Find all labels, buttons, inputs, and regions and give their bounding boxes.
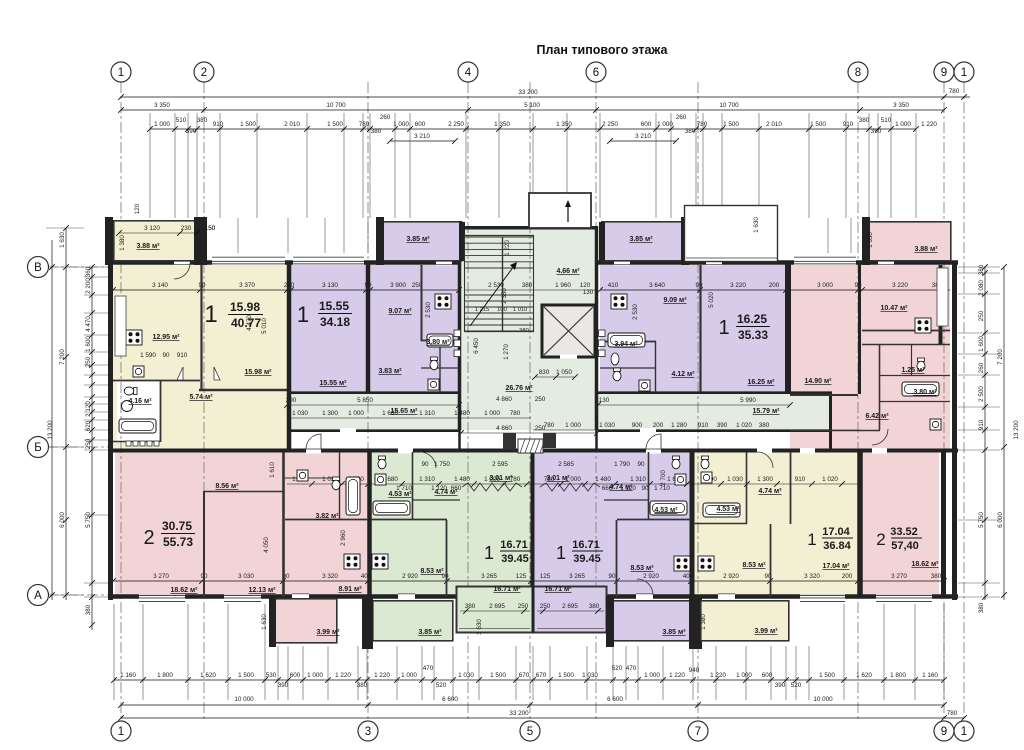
svg-text:2 700: 2 700 [660,470,667,486]
svg-text:360: 360 [85,266,92,277]
svg-text:8.56 м²: 8.56 м² [215,483,239,490]
svg-text:17.04 м²: 17.04 м² [823,563,851,570]
svg-text:6 000: 6 000 [59,512,66,528]
svg-text:1 380: 1 380 [119,235,126,251]
svg-text:35.33: 35.33 [738,328,768,342]
svg-text:910: 910 [698,422,709,429]
svg-text:2: 2 [201,67,207,79]
svg-text:16.25 м²: 16.25 м² [748,379,776,386]
svg-text:910: 910 [795,476,806,483]
svg-text:8.53 м²: 8.53 м² [742,562,766,569]
svg-text:1 630: 1 630 [261,614,268,630]
svg-text:4.66 м²: 4.66 м² [556,268,580,275]
svg-text:1 630: 1 630 [476,619,483,635]
svg-text:1 350: 1 350 [494,121,510,128]
svg-text:9: 9 [941,67,947,79]
svg-text:1: 1 [718,317,729,339]
svg-text:380: 380 [931,573,942,580]
svg-text:380: 380 [465,603,476,610]
svg-text:910: 910 [177,352,188,359]
svg-text:1 000: 1 000 [895,121,911,128]
svg-text:1 020: 1 020 [736,422,752,429]
svg-text:120: 120 [134,203,141,214]
svg-text:17.04: 17.04 [822,526,850,538]
svg-text:9.09 м²: 9.09 м² [663,297,687,304]
svg-text:18.62 м²: 18.62 м² [912,561,940,568]
svg-text:1 010: 1 010 [513,307,528,313]
svg-text:3 220: 3 220 [730,282,746,289]
svg-text:1 630: 1 630 [867,232,874,248]
svg-text:1 000: 1 000 [484,410,500,417]
svg-text:3.82 м²: 3.82 м² [315,513,339,520]
svg-text:2 080: 2 080 [978,280,985,296]
svg-text:6 450: 6 450 [473,338,480,354]
svg-text:15.55 м²: 15.55 м² [320,380,348,387]
svg-text:33.52: 33.52 [890,526,918,538]
svg-text:250: 250 [85,438,92,449]
svg-text:1 480: 1 480 [595,476,611,483]
svg-text:8.53 м²: 8.53 м² [420,568,444,575]
svg-text:12.95 м²: 12.95 м² [153,334,181,341]
svg-text:3.01 м²: 3.01 м² [546,475,570,482]
svg-text:380: 380 [522,282,533,289]
svg-text:6.42 м²: 6.42 м² [865,413,889,420]
svg-text:3 210: 3 210 [414,133,430,140]
svg-text:3 270: 3 270 [153,573,169,580]
svg-text:2 920: 2 920 [723,573,739,580]
svg-text:7 200: 7 200 [59,349,66,365]
svg-text:6 600: 6 600 [607,696,623,703]
svg-text:390: 390 [717,422,728,429]
svg-text:1 310: 1 310 [419,410,435,417]
svg-text:2 200: 2 200 [85,278,92,294]
svg-text:1 500: 1 500 [238,672,254,679]
svg-text:1 270: 1 270 [503,344,510,360]
svg-text:4: 4 [465,67,472,79]
svg-text:2 530: 2 530 [425,302,432,318]
svg-text:120: 120 [580,282,591,289]
svg-text:2 585: 2 585 [558,461,574,468]
svg-text:520: 520 [436,682,447,689]
svg-text:3.85 м²: 3.85 м² [406,236,430,243]
svg-text:260: 260 [978,362,985,373]
svg-text:530: 530 [266,672,277,679]
svg-text:380: 380 [371,128,382,135]
svg-text:15.65 м²: 15.65 м² [391,408,419,415]
svg-text:470: 470 [423,665,434,672]
svg-text:16.25: 16.25 [737,312,767,326]
svg-text:3.88 м²: 3.88 м² [136,243,160,250]
svg-text:13 200: 13 200 [47,420,54,440]
svg-text:6 600: 6 600 [442,696,458,703]
svg-text:90: 90 [421,461,429,468]
svg-text:1: 1 [297,302,309,327]
svg-text:380: 380 [978,602,985,613]
svg-text:900: 900 [632,422,643,429]
svg-text:3 220: 3 220 [892,282,908,289]
svg-text:250: 250 [535,425,546,432]
svg-text:4 470: 4 470 [85,316,92,332]
svg-text:780: 780 [359,121,370,128]
svg-text:3 900: 3 900 [390,282,406,289]
svg-text:14.90 м²: 14.90 м² [805,378,833,385]
svg-text:200: 200 [769,282,780,289]
svg-text:3.80 м²: 3.80 м² [426,339,450,346]
svg-text:380: 380 [589,603,600,610]
svg-text:1 020: 1 020 [822,476,838,483]
svg-text:26.76 м²: 26.76 м² [506,385,534,392]
svg-text:1: 1 [961,726,967,738]
svg-text:1 030: 1 030 [458,672,474,679]
svg-text:1 500: 1 500 [490,672,506,679]
svg-text:90: 90 [637,461,645,468]
svg-text:3 210: 3 210 [635,133,651,140]
svg-text:390: 390 [186,128,197,135]
svg-text:1: 1 [118,67,124,79]
svg-text:380: 380 [197,117,208,124]
svg-text:1 630: 1 630 [753,217,760,233]
svg-text:780: 780 [510,410,521,417]
svg-text:780: 780 [697,121,708,128]
svg-text:260: 260 [380,114,391,121]
svg-text:4.74 м²: 4.74 м² [434,489,458,496]
svg-text:3.83 м²: 3.83 м² [378,368,402,375]
svg-text:1 600: 1 600 [85,336,92,352]
svg-text:1 800: 1 800 [890,672,906,679]
svg-text:8: 8 [855,67,861,79]
svg-text:780: 780 [949,88,960,95]
svg-text:200: 200 [842,573,853,580]
svg-text:90: 90 [695,282,703,289]
svg-text:1 300: 1 300 [322,410,338,417]
svg-text:3 130: 3 130 [322,282,338,289]
svg-text:1 300: 1 300 [757,476,773,483]
svg-text:33 200: 33 200 [509,710,529,717]
svg-text:670: 670 [536,672,547,679]
svg-text:200: 200 [653,422,664,429]
svg-text:36.84: 36.84 [823,540,851,552]
svg-text:3.99 м²: 3.99 м² [316,629,340,636]
svg-text:520: 520 [612,665,623,672]
svg-text:410: 410 [608,282,619,289]
svg-text:1 500: 1 500 [810,121,826,128]
svg-text:10 000: 10 000 [813,696,833,703]
svg-text:5 100: 5 100 [524,102,540,109]
svg-text:600: 600 [641,121,652,128]
svg-text:55.73: 55.73 [163,535,193,549]
svg-text:33 200: 33 200 [518,89,538,96]
svg-text:3.01 м²: 3.01 м² [489,475,513,482]
svg-text:5 750: 5 750 [85,512,92,528]
svg-text:4.16 м²: 4.16 м² [128,398,152,405]
svg-text:2 920: 2 920 [402,573,418,580]
svg-text:1 220: 1 220 [374,672,390,679]
svg-text:3 640: 3 640 [649,282,665,289]
svg-text:6: 6 [593,67,599,79]
svg-text:510: 510 [881,117,892,124]
svg-text:4.12 м²: 4.12 м² [671,371,695,378]
svg-text:6 000: 6 000 [997,512,1004,528]
svg-text:5 990: 5 990 [740,397,756,404]
svg-text:1 620: 1 620 [200,672,216,679]
svg-text:3 320: 3 320 [322,573,338,580]
svg-text:1 620: 1 620 [856,672,872,679]
svg-text:600: 600 [290,672,301,679]
svg-text:1 480: 1 480 [454,476,470,483]
svg-text:520: 520 [791,682,802,689]
svg-text:1 590: 1 590 [140,352,156,359]
svg-text:8.53 м²: 8.53 м² [630,565,654,572]
svg-text:1 310: 1 310 [630,476,646,483]
svg-text:15.98 м²: 15.98 м² [245,369,273,376]
svg-text:3 370: 3 370 [239,282,255,289]
svg-text:1: 1 [118,726,124,738]
svg-text:13 200: 13 200 [1013,420,1020,440]
svg-text:4.53 м²: 4.53 м² [716,506,740,513]
svg-text:15.55: 15.55 [319,299,349,313]
svg-text:5 010: 5 010 [261,318,268,334]
svg-text:3.94 м²: 3.94 м² [614,341,638,348]
svg-text:380: 380 [978,264,985,275]
svg-text:4.53 м²: 4.53 м² [388,491,412,498]
svg-text:3 030: 3 030 [238,573,254,580]
svg-text:1: 1 [807,530,816,549]
svg-text:3 265: 3 265 [569,573,585,580]
svg-text:600: 600 [415,121,426,128]
svg-text:1 030: 1 030 [599,422,615,429]
svg-text:5 020: 5 020 [708,292,715,308]
svg-text:830: 830 [539,369,550,376]
svg-text:2 010: 2 010 [766,121,782,128]
svg-text:1 310: 1 310 [419,476,435,483]
svg-text:1 220: 1 220 [504,240,511,256]
svg-text:1 000: 1 000 [736,672,752,679]
svg-text:16.71: 16.71 [500,539,528,551]
svg-text:3 000: 3 000 [817,282,833,289]
svg-text:4.74 м²: 4.74 м² [758,488,782,495]
svg-text:380: 380 [85,604,92,615]
svg-text:2 960: 2 960 [340,530,347,546]
svg-text:57,40: 57,40 [891,540,919,552]
svg-text:1 630: 1 630 [59,232,66,248]
svg-text:510: 510 [176,117,187,124]
svg-text:15.79 м²: 15.79 м² [753,408,781,415]
svg-text:470: 470 [626,665,637,672]
svg-text:125: 125 [540,573,551,580]
svg-text:130: 130 [599,397,610,404]
svg-text:4 860: 4 860 [496,425,512,432]
svg-text:1 600: 1 600 [978,336,985,352]
svg-text:5 850: 5 850 [357,397,373,404]
svg-text:3.85 м²: 3.85 м² [418,629,442,636]
svg-text:10 000: 10 000 [234,696,254,703]
svg-text:3.85 м²: 3.85 м² [662,629,686,636]
svg-text:1 030: 1 030 [292,410,308,417]
svg-text:3.85 м²: 3.85 м² [629,236,653,243]
svg-text:3: 3 [365,726,371,738]
svg-text:250: 250 [518,603,529,610]
svg-text:12.13 м²: 12.13 м² [249,587,277,594]
svg-text:1 380: 1 380 [700,614,707,630]
svg-text:1 030: 1 030 [727,476,743,483]
svg-text:8.91 м²: 8.91 м² [338,586,362,593]
svg-text:40.77: 40.77 [231,316,261,330]
svg-text:4 860: 4 860 [496,396,512,403]
svg-text:7 200: 7 200 [997,349,1004,365]
svg-text:1 960: 1 960 [555,282,571,289]
svg-text:1 500: 1 500 [558,672,574,679]
svg-text:5: 5 [527,726,533,738]
svg-text:1 500: 1 500 [327,121,343,128]
svg-text:1 000: 1 000 [644,672,660,679]
svg-text:3 265: 3 265 [481,573,497,580]
svg-text:1 220: 1 220 [335,672,351,679]
svg-text:1 220: 1 220 [921,121,937,128]
svg-text:390: 390 [775,682,786,689]
svg-text:2: 2 [143,527,154,549]
svg-text:390: 390 [278,682,289,689]
svg-text:125: 125 [516,573,527,580]
svg-text:670: 670 [519,672,530,679]
svg-text:1 610: 1 610 [269,462,276,478]
svg-text:380: 380 [357,682,368,689]
svg-text:10.47 м²: 10.47 м² [881,305,909,312]
svg-text:1: 1 [961,67,967,79]
svg-text:1 000: 1 000 [565,422,581,429]
svg-text:3.88 м²: 3.88 м² [914,246,938,253]
svg-text:600: 600 [762,672,773,679]
svg-text:2 595: 2 595 [492,461,508,468]
svg-text:1 000: 1 000 [307,672,323,679]
svg-text:2 120: 2 120 [85,401,92,417]
svg-text:А: А [34,590,42,602]
svg-text:5 750: 5 750 [978,512,985,528]
svg-text:90: 90 [162,352,170,359]
svg-text:Б: Б [34,442,42,454]
svg-text:1 280: 1 280 [671,422,687,429]
svg-text:В: В [34,262,42,274]
svg-text:90: 90 [608,573,616,580]
svg-text:1 220: 1 220 [669,672,685,679]
svg-text:2 695: 2 695 [489,603,505,610]
svg-text:3 320: 3 320 [804,573,820,580]
svg-text:1 220: 1 220 [710,672,726,679]
svg-text:1 030: 1 030 [582,672,598,679]
svg-text:380: 380 [859,117,870,124]
svg-text:2 250: 2 250 [448,121,464,128]
svg-text:9: 9 [941,726,947,738]
svg-text:250: 250 [535,396,546,403]
svg-text:130: 130 [583,289,594,296]
svg-text:15.98: 15.98 [230,300,260,314]
svg-text:780: 780 [544,422,555,429]
svg-text:260: 260 [676,114,687,121]
svg-text:1 000: 1 000 [154,121,170,128]
svg-text:3 350: 3 350 [154,102,170,109]
svg-text:16.71: 16.71 [572,539,600,551]
svg-text:1 790: 1 790 [614,461,630,468]
svg-text:1 480: 1 480 [454,410,470,417]
svg-text:16.71 м²: 16.71 м² [545,586,573,593]
svg-text:4 050: 4 050 [263,537,270,553]
svg-text:1: 1 [556,543,566,563]
svg-text:390: 390 [871,128,882,135]
svg-text:910: 910 [213,121,224,128]
svg-text:1 000: 1 000 [401,672,417,679]
svg-text:5.74 м²: 5.74 м² [189,394,213,401]
svg-text:3 350: 3 350 [893,102,909,109]
svg-text:1: 1 [484,543,494,563]
svg-text:7: 7 [695,726,701,738]
svg-text:9.07 м²: 9.07 м² [388,308,412,315]
svg-text:780: 780 [947,710,958,717]
svg-text:250: 250 [540,603,551,610]
svg-text:39.45: 39.45 [573,553,601,565]
svg-text:34.18: 34.18 [320,315,350,329]
svg-text:10 700: 10 700 [719,102,739,109]
svg-text:30.75: 30.75 [162,519,192,533]
svg-text:3 120: 3 120 [144,225,160,232]
svg-text:940: 940 [689,667,700,674]
svg-text:10 700: 10 700 [326,102,346,109]
svg-text:3.99 м²: 3.99 м² [754,628,778,635]
svg-text:620: 620 [85,420,92,431]
svg-text:39.45: 39.45 [501,553,529,565]
svg-text:2 920: 2 920 [643,573,659,580]
svg-text:910: 910 [843,121,854,128]
svg-text:1 500: 1 500 [240,121,256,128]
svg-text:16.71 м²: 16.71 м² [494,586,522,593]
svg-text:150: 150 [205,225,216,232]
svg-text:910: 910 [978,419,985,430]
svg-text:1 000: 1 000 [657,121,673,128]
svg-text:3 140: 3 140 [152,282,168,289]
svg-text:4.53 м²: 4.53 м² [654,507,678,514]
svg-text:2 250: 2 250 [602,121,618,128]
svg-text:1 500: 1 500 [723,121,739,128]
svg-text:1: 1 [204,301,217,328]
svg-text:План типового этажа: План типового этажа [537,43,669,57]
svg-text:2 695: 2 695 [562,603,578,610]
svg-text:1 350: 1 350 [556,121,572,128]
svg-text:3 270: 3 270 [891,573,907,580]
svg-text:1 160: 1 160 [922,672,938,679]
svg-text:2: 2 [876,530,885,549]
svg-text:1.25 м²: 1.25 м² [901,367,925,374]
svg-text:380: 380 [759,422,770,429]
svg-text:2 010: 2 010 [284,121,300,128]
svg-text:1 500: 1 500 [819,672,835,679]
svg-text:18.62 м²: 18.62 м² [171,587,199,594]
svg-text:1 000: 1 000 [393,121,409,128]
svg-text:1 000: 1 000 [348,410,364,417]
svg-text:1 050: 1 050 [556,369,572,376]
svg-text:4.74 м²: 4.74 м² [609,484,633,491]
svg-text:2 530: 2 530 [632,304,639,320]
svg-text:230: 230 [181,225,192,232]
svg-text:380: 380 [685,128,696,135]
svg-text:3.80 м²: 3.80 м² [913,389,937,396]
svg-text:1 750: 1 750 [434,461,450,468]
svg-text:250: 250 [85,356,92,367]
svg-text:1 160: 1 160 [120,672,136,679]
svg-text:1 800: 1 800 [157,672,173,679]
svg-text:250: 250 [978,310,985,321]
svg-text:2 500: 2 500 [978,386,985,402]
